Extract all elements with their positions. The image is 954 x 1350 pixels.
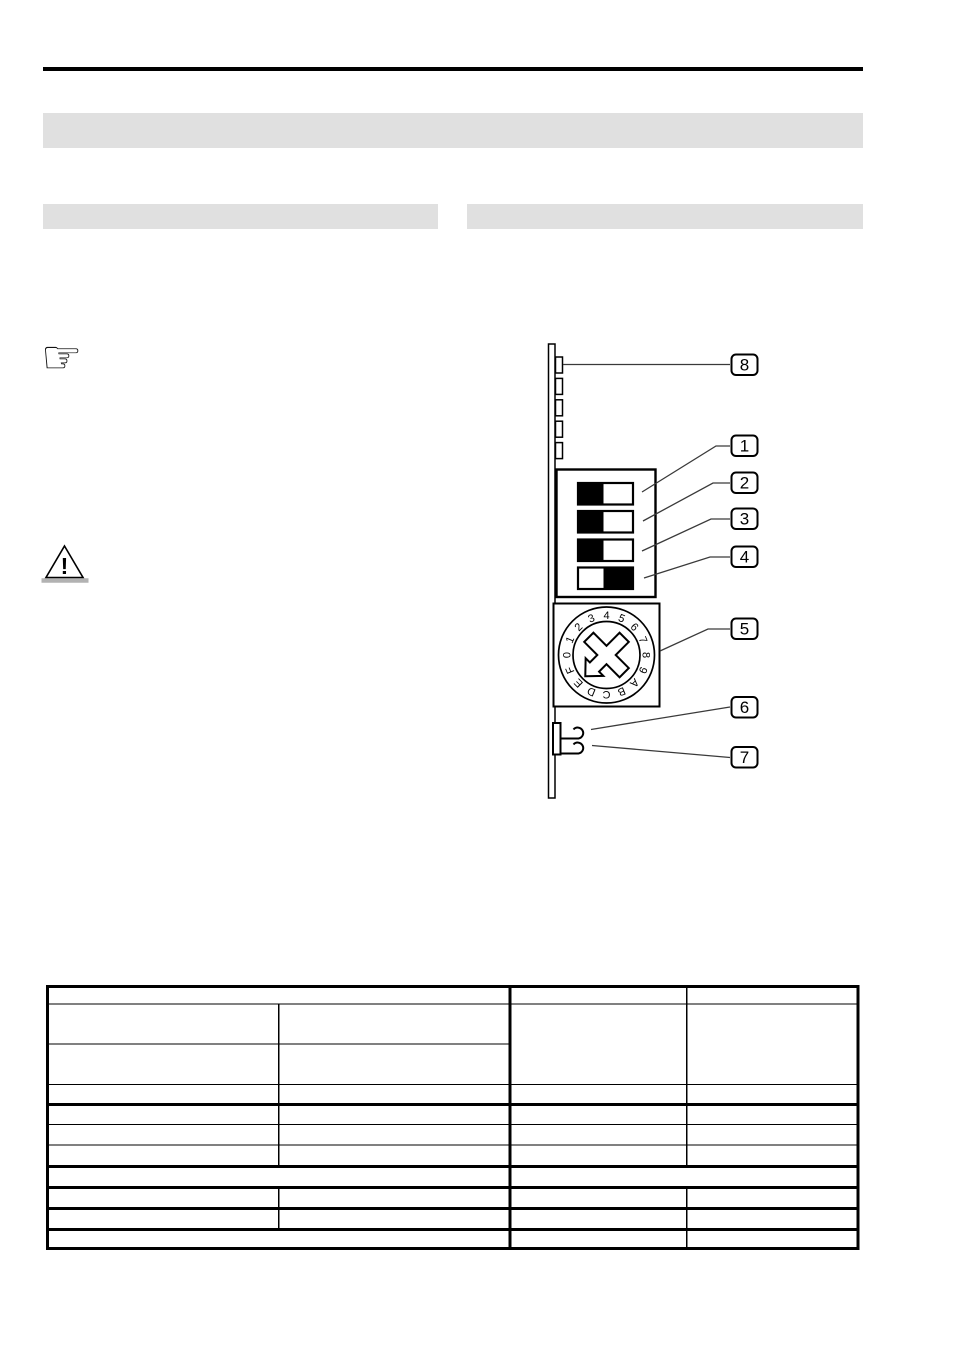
svg-text:1: 1 [740,437,749,456]
callout-1: 1 [732,436,758,457]
callout-2: 2 [732,473,758,494]
svg-text:5: 5 [740,620,749,639]
connector-pins [556,357,563,459]
callout-8: 8 [732,355,758,376]
svg-text:3: 3 [740,510,749,529]
connector-pin [556,443,563,459]
callout-4: 4 [732,547,758,568]
callout-3: 3 [732,509,758,530]
svg-text:6: 6 [740,698,749,717]
jumper-pin-lower [561,743,584,754]
svg-text:7: 7 [740,748,749,767]
table-horizontal-lines [46,1004,859,1230]
page-graphics: ! [0,0,954,1350]
dip-switch-3 [578,540,633,562]
callout-5: 5 [732,619,758,640]
callout-6: 6 [732,697,758,718]
document-page: ☞ ! [0,0,954,1350]
connector-pin [556,378,563,394]
rotary-hex-switch: 0 1 2 3 4 5 6 7 8 9 A B C D E F [554,604,660,707]
dip-switch-4 [578,568,633,590]
dip-switch-1 [578,483,633,505]
svg-text:8: 8 [740,356,749,375]
jumper-pins [553,723,583,755]
svg-text:C: C [602,688,610,700]
svg-text:4: 4 [603,610,609,622]
dip-switch-2 [578,511,633,533]
configuration-table [46,986,859,1249]
jumper-pin-upper [561,728,584,739]
connector-pin [556,357,563,373]
svg-text:4: 4 [740,548,749,567]
svg-text:0: 0 [562,652,574,658]
pcb-edge-diagram: 0 1 2 3 4 5 6 7 8 9 A B C D E F [549,344,758,798]
svg-text:8: 8 [640,652,652,658]
connector-pin [556,421,563,437]
warning-exclamation: ! [61,553,69,579]
callout-7: 7 [732,747,758,768]
warning-icon: ! [42,546,89,581]
connector-pin [556,400,563,416]
jumper-block [553,723,561,755]
callouts: 8 1 2 3 4 [732,355,758,768]
svg-text:2: 2 [740,474,749,493]
dip-switch-block [557,470,656,598]
